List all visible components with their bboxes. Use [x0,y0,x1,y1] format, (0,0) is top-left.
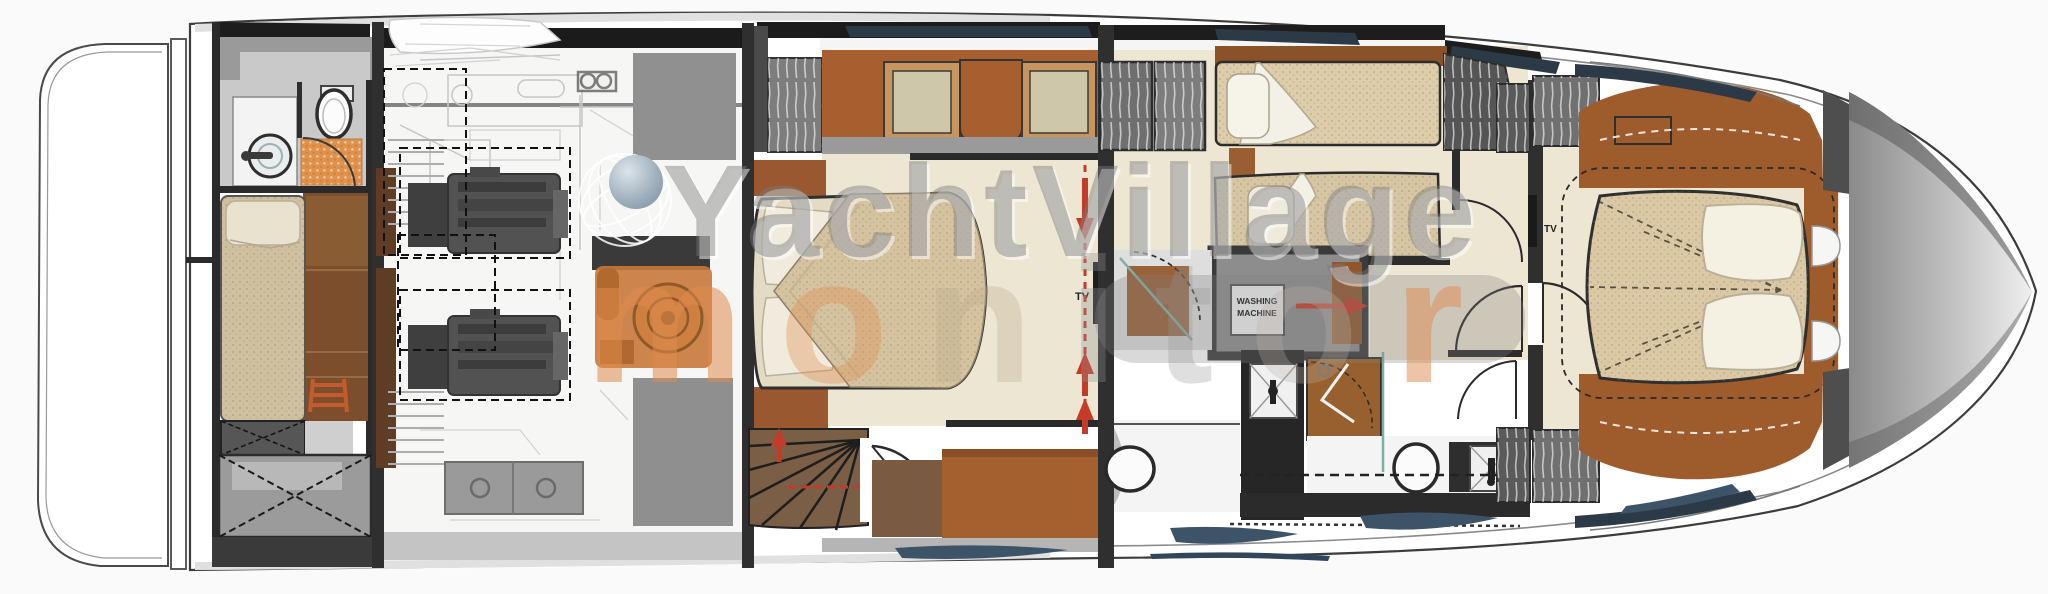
svg-text:monitor: monitor [585,221,1500,420]
svg-text:TV: TV [1544,224,1557,235]
